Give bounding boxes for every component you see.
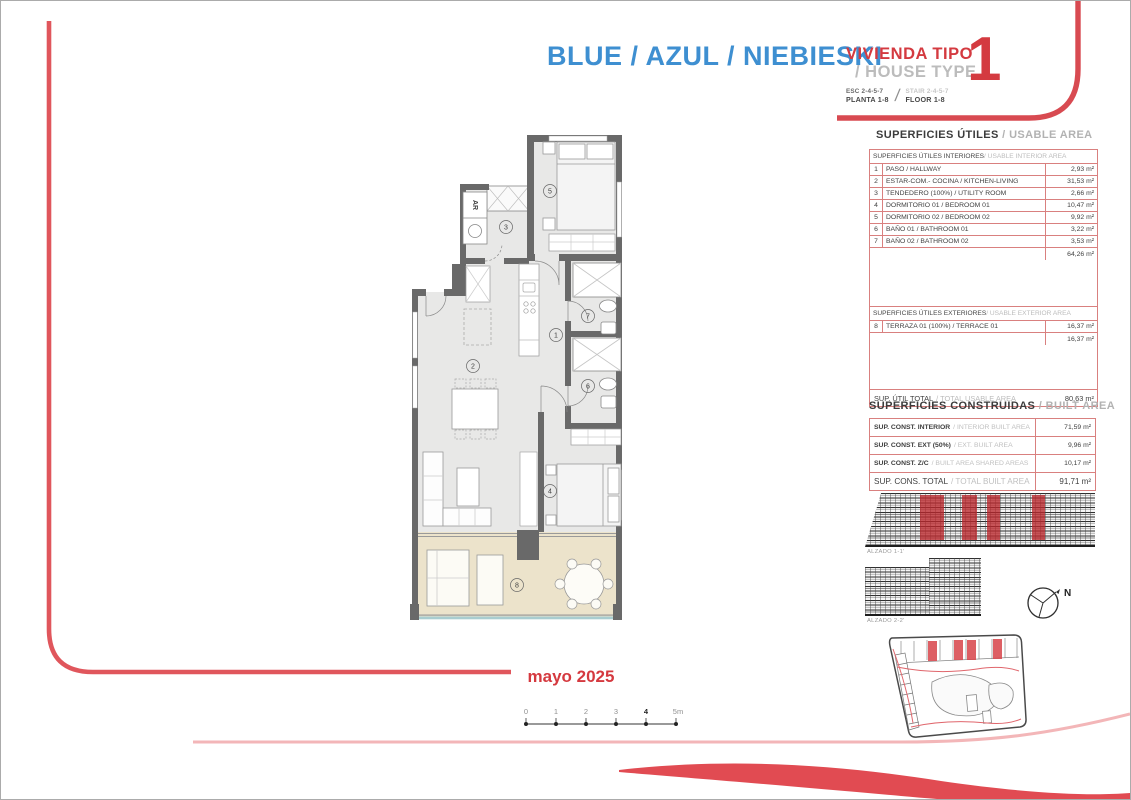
kitchen-counter	[519, 264, 539, 356]
svg-text:5m: 5m	[673, 707, 683, 716]
svg-text:4: 4	[548, 489, 552, 496]
highlighted-units	[920, 495, 944, 540]
table-row: SUP. CONST. INTERIOR/ INTERIOR BUILT ARE…	[869, 418, 1096, 437]
scale-bar: 0 1 2 3 4 5m	[513, 705, 703, 733]
highlighted-units	[987, 495, 1000, 540]
table-row: 5DORMITORIO 02 / BEDROOM 029,92 m²	[870, 212, 1097, 224]
table-row: SUP. CONST. Z/C/ BUILT AREA SHARED AREAS…	[869, 454, 1096, 473]
vivienda-tipo-label: VIVIENDA TIPO	[846, 45, 973, 64]
interior-subtotal: 64,26 m²	[870, 248, 1097, 260]
page-title: BLUE / AZUL / NIEBIESKI	[547, 41, 883, 72]
washer-label: AR	[471, 200, 478, 210]
sideboard	[520, 452, 537, 526]
built-area-title: SUPERFICIES CONSTRUIDAS / BUILT AREA	[869, 400, 1115, 412]
svg-text:1: 1	[554, 707, 558, 716]
svg-text:0: 0	[524, 707, 528, 716]
planta-label: PLANTA 1-8	[846, 95, 889, 104]
wardrobe	[571, 429, 621, 445]
separator-slash: /	[893, 86, 901, 106]
north-label: N	[1064, 588, 1071, 599]
stair-label: STAIR 2-4-5-7	[905, 88, 948, 95]
svg-text:5: 5	[548, 189, 552, 196]
table-row: 3TENDEDERO (100%) / UTILITY ROOM2,66 m²	[870, 188, 1097, 200]
floor-label: FLOOR 1-8	[905, 95, 948, 104]
table-row: SUP. CONST. EXT (50%)/ EXT. BUILT AREA 9…	[869, 436, 1096, 455]
built-total-row: SUP. CONS. TOTAL/ TOTAL BUILT AREA 91,71…	[869, 472, 1096, 491]
highlighted-units	[962, 495, 977, 540]
svg-text:6: 6	[586, 384, 590, 391]
svg-text:2: 2	[584, 707, 588, 716]
scale-labels: 0 1 2 3 4 5m	[524, 707, 683, 716]
terrace-glass-rail	[412, 617, 622, 620]
stair-floor-block: ESC 2-4-5-7 PLANTA 1-8 / STAIR 2-4-5-7 F…	[846, 86, 949, 106]
elevation-2-drawing	[929, 558, 981, 616]
svg-text:3: 3	[504, 225, 508, 232]
house-type-label: / HOUSE TYPE	[855, 63, 977, 82]
esc-label: ESC 2-4-5-7	[846, 88, 889, 95]
elevation-2-label: ALZADO 2-2'	[867, 618, 905, 624]
site-plan	[877, 627, 1049, 763]
date-label: mayo 2025	[506, 667, 636, 687]
table-row: 8TERRAZA 01 (100%) / TERRACE 0116,37 m²	[870, 321, 1097, 333]
elevation-1-label: ALZADO 1-1'	[867, 549, 905, 555]
house-type-number: 1	[967, 29, 1001, 91]
exterior-header: SUPERFICIES ÚTILES EXTERIORES / USABLE E…	[870, 306, 1097, 321]
bed-bedroom01	[546, 464, 621, 526]
svg-text:8: 8	[515, 583, 519, 590]
built-area-table: SUP. CONST. INTERIOR/ INTERIOR BUILT ARE…	[869, 418, 1096, 491]
north-arrow	[1056, 589, 1060, 594]
svg-text:3: 3	[614, 707, 618, 716]
bottom-red-ribbon	[619, 764, 1130, 799]
utility-hatch	[487, 186, 529, 211]
wardrobe	[549, 234, 615, 251]
table-row: 2ESTAR-COM.- COCINA / KITCHEN-LIVING31,5…	[870, 176, 1097, 188]
svg-text:1: 1	[554, 333, 558, 340]
compass-needles	[1031, 592, 1056, 617]
floor-plan: AR	[399, 134, 631, 639]
svg-text:4: 4	[644, 707, 649, 716]
interior-header: SUPERFICIES ÚTILES INTERIORES / USABLE I…	[870, 150, 1097, 164]
table-row: 6BAÑO 01 / BATHROOM 013,22 m²	[870, 224, 1097, 236]
sun-loungers	[427, 550, 503, 606]
svg-text:7: 7	[586, 314, 590, 321]
table-row: 4DORMITORIO 01 / BEDROOM 0110,47 m²	[870, 200, 1097, 212]
tall-cabinet	[466, 266, 490, 302]
table-row: 1PASO / HALLWAY2,93 m²	[870, 164, 1097, 176]
north-compass: N	[1023, 579, 1083, 627]
exterior-subtotal: 16,37 m²	[870, 333, 1097, 345]
svg-text:2: 2	[471, 364, 475, 371]
washer-unit: AR	[463, 192, 487, 244]
table-row: 7BAÑO 02 / BATHROOM 023,53 m²	[870, 236, 1097, 248]
elevation-1-drawing	[865, 493, 1095, 547]
usable-area-table: SUPERFICIES ÚTILES INTERIORES / USABLE I…	[869, 149, 1098, 407]
highlighted-units	[1032, 495, 1045, 540]
elevation-2-drawing	[865, 567, 929, 616]
dining-table	[452, 389, 498, 429]
usable-area-title: SUPERFICIES ÚTILES / USABLE AREA	[876, 129, 1093, 141]
plan-sheet: BLUE / AZUL / NIEBIESKI VIVIENDA TIPO / …	[0, 0, 1131, 800]
